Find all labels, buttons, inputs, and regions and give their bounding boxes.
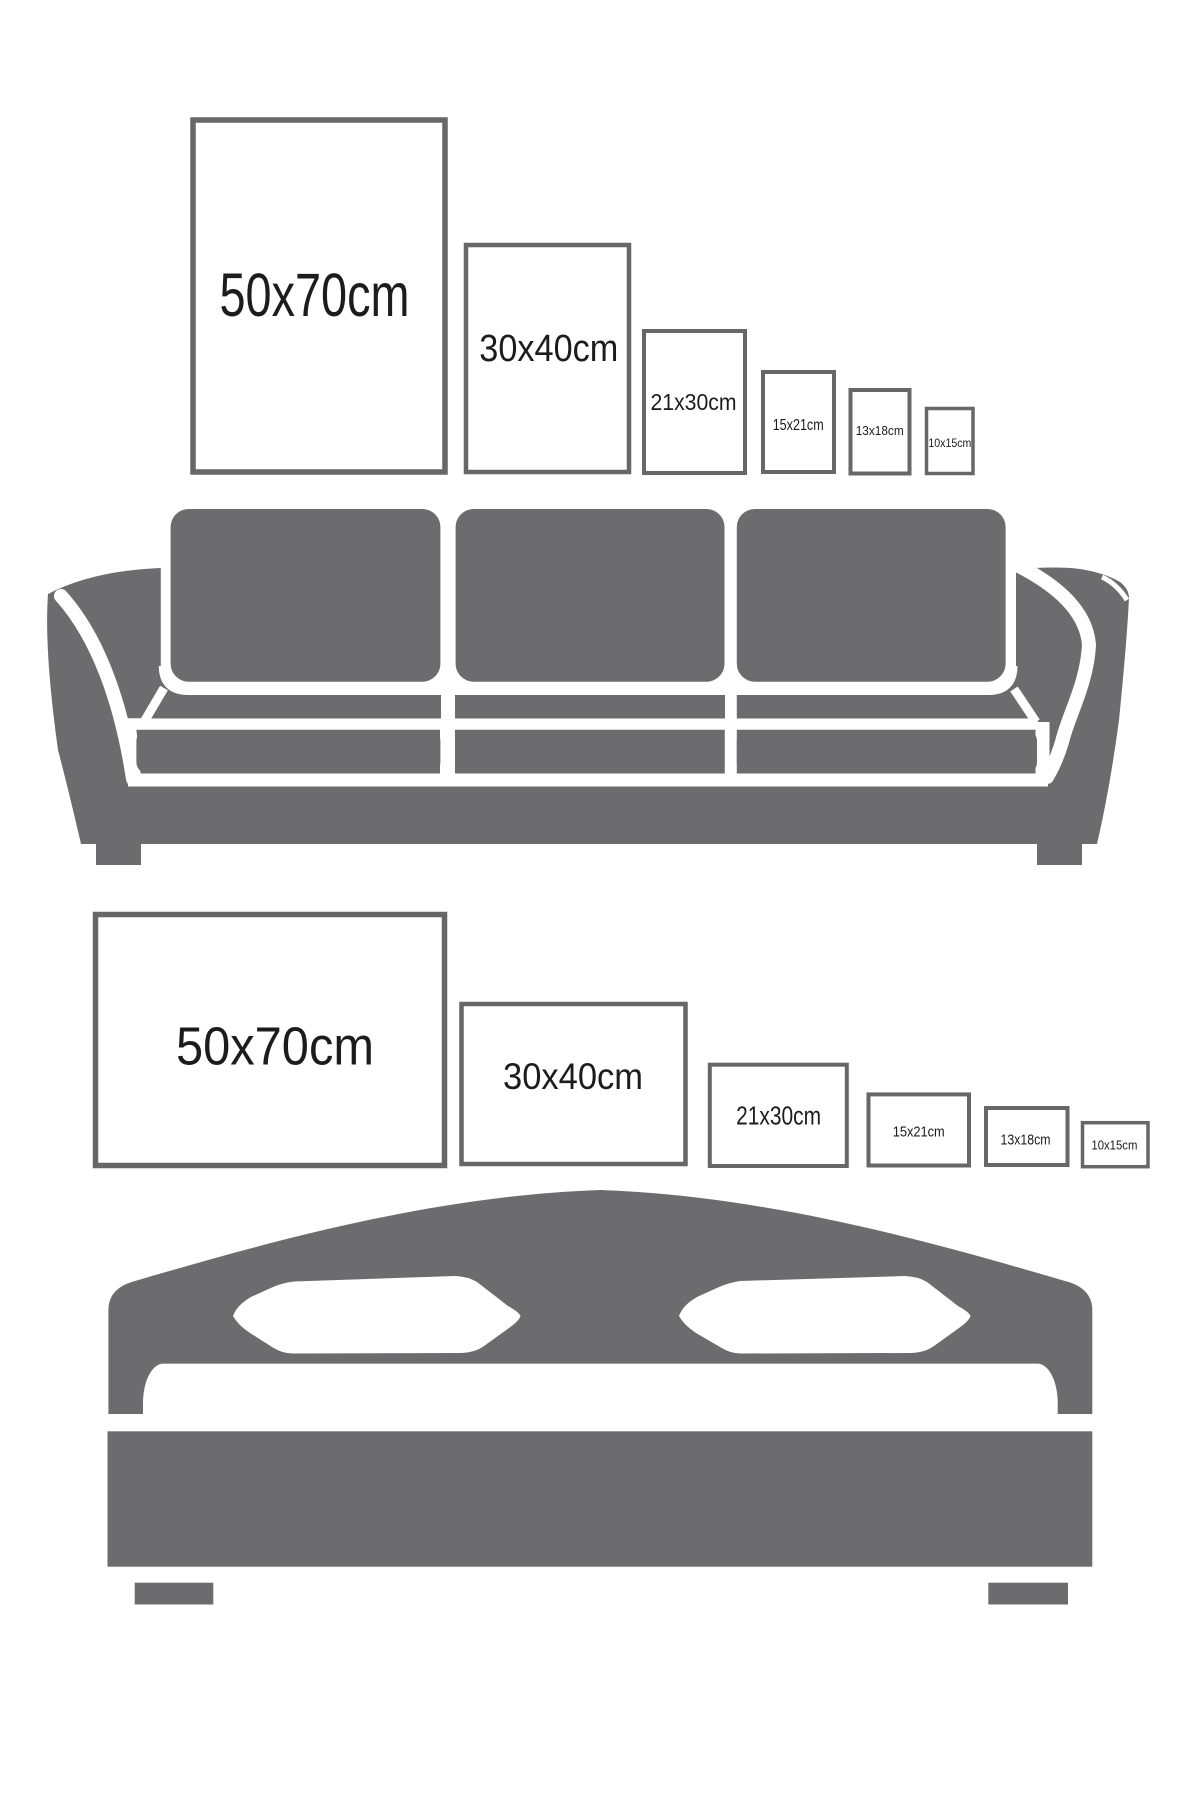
svg-text:15x21cm: 15x21cm (893, 1123, 945, 1140)
svg-text:30x40cm: 30x40cm (503, 1056, 643, 1097)
svg-text:21x30cm: 21x30cm (651, 389, 737, 415)
svg-text:50x70cm: 50x70cm (220, 261, 410, 329)
svg-text:30x40cm: 30x40cm (479, 328, 618, 370)
svg-text:21x30cm: 21x30cm (736, 1101, 821, 1131)
svg-text:13x18cm: 13x18cm (1001, 1132, 1051, 1149)
svg-text:10x15cm: 10x15cm (928, 438, 971, 450)
svg-text:13x18cm: 13x18cm (856, 424, 904, 438)
svg-text:15x21cm: 15x21cm (773, 417, 824, 434)
svg-text:10x15cm: 10x15cm (1091, 1137, 1137, 1152)
svg-text:50x70cm: 50x70cm (176, 1017, 374, 1077)
